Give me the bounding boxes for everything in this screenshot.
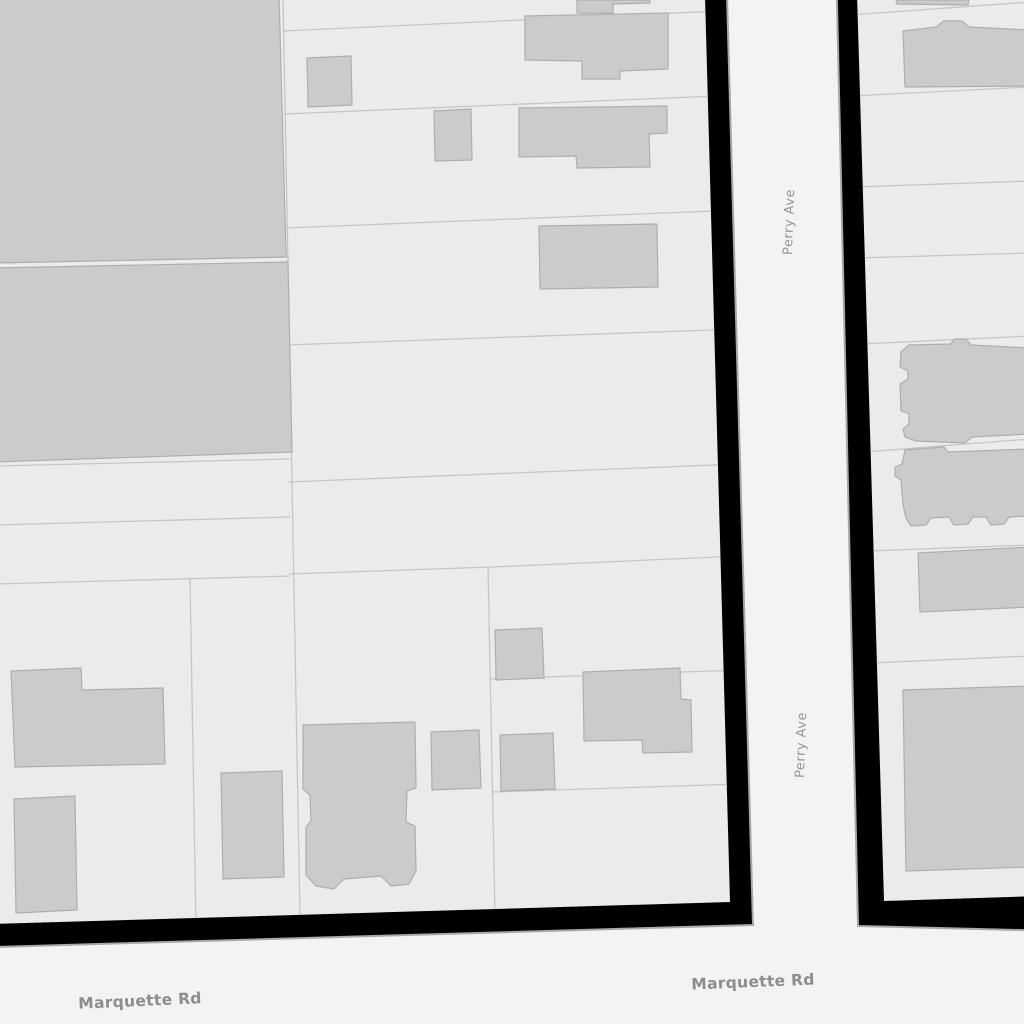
building-footprint	[903, 21, 1024, 87]
building-footprint	[495, 628, 544, 680]
street-label-perry-ave-lower: Perry Ave	[793, 712, 810, 778]
building-footprint	[221, 771, 284, 879]
building-footprint	[0, 262, 292, 462]
street-label-perry-ave-upper: Perry Ave	[781, 189, 798, 255]
map-viewport[interactable]: Perry Ave Perry Ave Marquette Rd Marquet…	[0, 0, 1024, 1024]
building-footprint	[0, 0, 286, 263]
building-footprint	[307, 56, 352, 107]
building-footprint	[431, 730, 481, 790]
building-footprint	[583, 668, 692, 753]
building-footprint	[434, 109, 472, 161]
map-canvas[interactable]: Perry Ave Perry Ave Marquette Rd Marquet…	[0, 0, 1024, 1024]
building-footprint	[918, 547, 1024, 612]
building-footprint	[539, 224, 658, 289]
building-footprint	[896, 0, 969, 5]
building-footprint	[303, 722, 416, 889]
building-footprint	[500, 733, 555, 791]
building-footprint	[900, 339, 1024, 443]
building-footprint	[903, 686, 1024, 871]
building-footprint	[895, 447, 1024, 526]
map-geometry	[0, 0, 1024, 948]
building-footprint	[14, 796, 77, 913]
